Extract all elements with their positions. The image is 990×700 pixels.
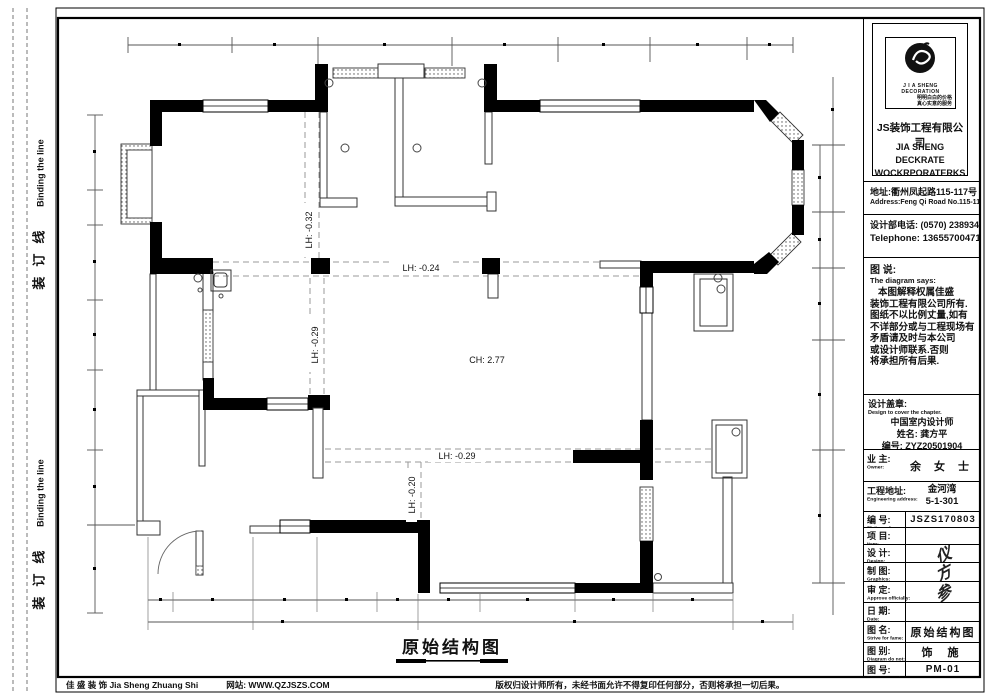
title-block: J I A SHENG DECORATION 明明白白的价格 真心实意的服务 J… [863,18,980,677]
footer-website: 网站: WWW.QZJSZS.COM [198,679,329,691]
company-logo-box: J I A SHENG DECORATION 明明白白的价格 真心实意的服务 J… [872,23,968,176]
phone-en: Telephone: 13655700471 [864,231,980,244]
title-block-phone-section: 设计部电话: (0570) 2389348 Telephone: 1365570… [864,215,980,258]
owner-value: 余 女 士 [904,458,980,474]
binding-line [13,8,27,692]
drawing-class-value: 饰 施 [906,643,980,661]
footer-company: 佳 盛 装 饰 Jia Sheng Zhuang Shi [58,679,198,691]
logo-brand-text: J I A SHENG DECORATION [886,83,955,95]
title-block-owner-row: 业 主: Owner: 余 女 士 [864,450,980,482]
entry-door [158,531,203,575]
notes-title-en: The diagram says: [864,276,980,287]
date-value [906,603,980,621]
row-graphics: 制 图:Graphics: 方 [864,563,980,582]
fixtures [211,270,747,478]
address-cn: 地址:衢州凤起路115-117号 [864,182,980,198]
phone-cn: 设计部电话: (0570) 2389348 [864,215,980,231]
plan-labels: LH: -0.32 LH: -0.24 LH: -0.29 CH: 2.77 L… [303,203,505,522]
site-value-1: 金河湾 [904,484,980,496]
title-block-notes-section: 图 说: The diagram says: 本图解释权属佳盛 装饰工程有限公司… [864,258,980,395]
row-drawing-number: 图 号:Diagram number: PM-01 [864,662,980,677]
plan-title: 原始结构图 [402,637,502,657]
stamp-designer-number: 编号: ZYZ20501904 [864,440,980,450]
site-value-2: 5-1-301 [904,496,980,508]
symbol-circles [194,79,740,581]
structural-walls [150,64,804,593]
stamp-line-1: 中国室内设计师 [864,416,980,428]
title-block-stamp-section: 设计盖章: Design to cover the chapter. 中国室内设… [864,395,980,450]
notes-line: 本图解释权属佳盛 [864,287,980,299]
notes-title-cn: 图 说: [864,258,980,276]
label-lh-029-vertical: LH: -0.29 [310,326,320,363]
notes-line: 矛盾请及时与本公司 [864,333,980,345]
row-drawing-class: 图 别:Diagram do not: 饰 施 [864,643,980,662]
row-item: 项 目:Item: [864,528,980,545]
design-signature: 仪 [932,545,954,563]
item-value [906,528,980,544]
title-block-site-row: 工程地址: Engineering address: 金河湾 5-1-301 [864,482,980,512]
binding-line-label-top: 装订线 Binding the line [29,95,48,335]
part-number-value: JSZS170803 [906,512,980,527]
bay-windows [121,68,804,541]
notes-line: 或设计师联系.否则 [864,345,980,357]
label-lh-032: LH: -0.32 [304,211,314,248]
company-logo-icon [886,38,955,78]
notes-line: 将承担所有后果. [864,356,980,368]
title-block-logo-section: J I A SHENG DECORATION 明明白白的价格 真心实意的服务 J… [864,18,980,182]
graphics-signature: 方 [932,563,954,582]
binding-line-label-bottom: 装订线 Binding the line [29,415,48,655]
row-date: 日 期:Date: [864,603,980,622]
logo-slogan-2: 真心实意的服务 [886,101,955,107]
company-name-en: JIA SHENG DECKRATE WOCKRPORATERKS [873,141,967,180]
windows [203,100,653,593]
owner-label-cn: 业 主: [867,452,891,465]
floor-plan: LH: -0.32 LH: -0.24 LH: -0.29 CH: 2.77 L… [0,0,990,700]
drawing-sheet: LH: -0.32 LH: -0.24 LH: -0.29 CH: 2.77 L… [0,0,990,700]
label-lh-029-horizontal: LH: -0.29 [438,451,475,461]
label-lh-024: LH: -0.24 [402,263,439,273]
binding-line-label-en: Binding the line [36,139,46,207]
footer-copyright: 版权归设计师所有，未经书面允许不得复印任何部分，否则将承担一切后果。 [330,679,980,691]
row-drawing-name: 图 名:Strive for fame: 原始结构图 [864,622,980,643]
drawing-name-value: 原始结构图 [906,622,980,642]
row-design: 设 计:Design: 仪 [864,545,980,563]
approve-signature: 参 [932,582,954,603]
notes-line: 装饰工程有限公司所有. [864,299,980,311]
row-part-number: 编 号:Plait number: JSZS170803 [864,512,980,528]
binding-line-label-en2: Binding the line [36,459,46,527]
title-block-address-section: 地址:衢州凤起路115-117号 Address:Feng Qi Road No… [864,182,980,215]
company-logo-frame: J I A SHENG DECORATION 明明白白的价格 真心实意的服务 [885,37,956,109]
notes-line: 图纸不以比例丈量,如有 [864,310,980,322]
footer-strip: 佳 盛 装 饰 Jia Sheng Zhuang Shi 网站: WWW.QZJ… [58,677,980,692]
owner-label-en: Owner: [867,465,888,470]
label-lh-020: LH: -0.20 [407,476,417,513]
row-approve: 审 定:Approve officially: 参 [864,582,980,603]
notes-line: 不详部分或与工程现场有 [864,322,980,334]
stamp-designer-name: 姓名: 龚方平 [864,428,980,440]
plan-title-group: 原始结构图 [396,637,508,663]
stamp-title-cn: 设计盖章: [864,395,980,410]
label-ch-277: CH: 2.77 [469,355,505,365]
address-en: Address:Feng Qi Road No.115-117 [864,198,980,206]
drawing-number-value: PM-01 [906,662,980,677]
